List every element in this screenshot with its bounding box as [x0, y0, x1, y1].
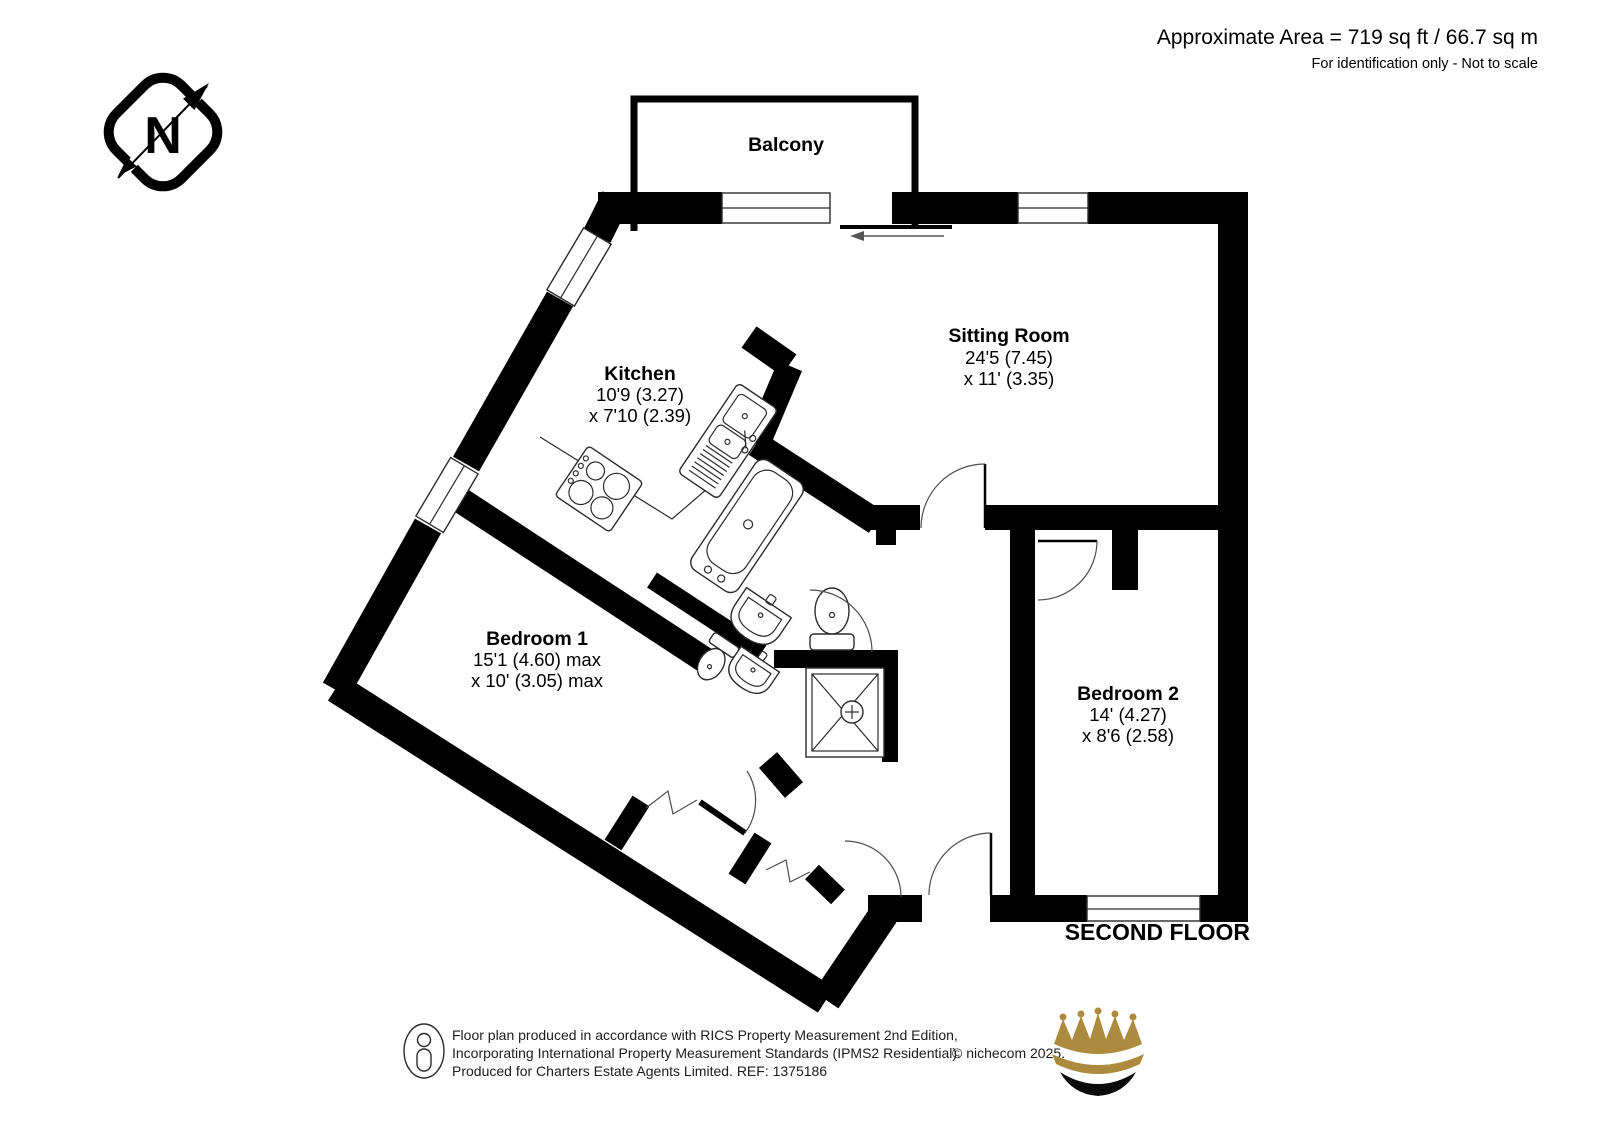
hall-door [845, 841, 901, 897]
area-text: Approximate Area = 719 sq ft / 66.7 sq m [1157, 26, 1538, 49]
toilet-icon [810, 588, 854, 650]
footer-line2: Incorporating International Property Mea… [452, 1045, 961, 1061]
shower-icon [806, 668, 884, 757]
kitchen-dim1: 10'9 (3.27) [596, 384, 684, 405]
kitchen-window [547, 228, 611, 306]
bedroom2-window [1087, 896, 1200, 921]
sitting-room-label: Sitting Room [948, 325, 1069, 347]
floor-label: SECOND FLOOR [1065, 919, 1251, 945]
footer-line3: Produced for Charters Estate Agents Limi… [452, 1063, 827, 1079]
floor-plan-canvas: N Approximate Area = 719 sq ft / 66.7 sq… [0, 0, 1600, 1131]
disclaimer-text: For identification only - Not to scale [1312, 56, 1538, 72]
bedroom2-dim1: 14' (4.27) [1089, 704, 1167, 725]
crown-logo-icon [1052, 1008, 1144, 1097]
slide-arrow-icon [850, 231, 864, 241]
sitting-room-door [921, 464, 985, 528]
hob-icon [555, 446, 643, 533]
floor-plan-page: N Approximate Area = 719 sq ft / 66.7 sq… [0, 0, 1600, 1131]
person-icon [404, 1024, 444, 1078]
balcony-window [722, 193, 830, 223]
balcony-label: Balcony [748, 134, 824, 156]
sitting-room-dim1: 24'5 (7.45) [965, 347, 1053, 368]
sliding-door [840, 227, 952, 241]
sitting-room-dim2: x 11' (3.35) [964, 368, 1055, 389]
sitting-room-window [1018, 193, 1088, 223]
bedroom2-label: Bedroom 2 [1077, 683, 1179, 705]
compass-letter: N [144, 107, 182, 165]
compass: N [98, 67, 228, 197]
bedroom1-dim1: 15'1 (4.60) max [473, 649, 602, 670]
bedroom1-label: Bedroom 1 [486, 628, 588, 650]
bedroom2-dim2: x 8'6 (2.58) [1082, 725, 1174, 746]
bedroom1-dim2: x 10' (3.05) max [471, 670, 604, 691]
walls [336, 192, 1248, 1000]
closet-bifold-doors [646, 791, 810, 882]
footer: Floor plan produced in accordance with R… [404, 1008, 1144, 1097]
footer-copyright: © nichecom 2025. [952, 1045, 1065, 1061]
kitchen-label: Kitchen [604, 363, 676, 385]
kitchen-dim2: x 7'10 (2.39) [589, 405, 691, 426]
footer-line1: Floor plan produced in accordance with R… [452, 1027, 958, 1043]
bedroom2-door [1038, 541, 1097, 600]
bedroom1-door [700, 771, 756, 833]
entry-door [929, 833, 991, 895]
